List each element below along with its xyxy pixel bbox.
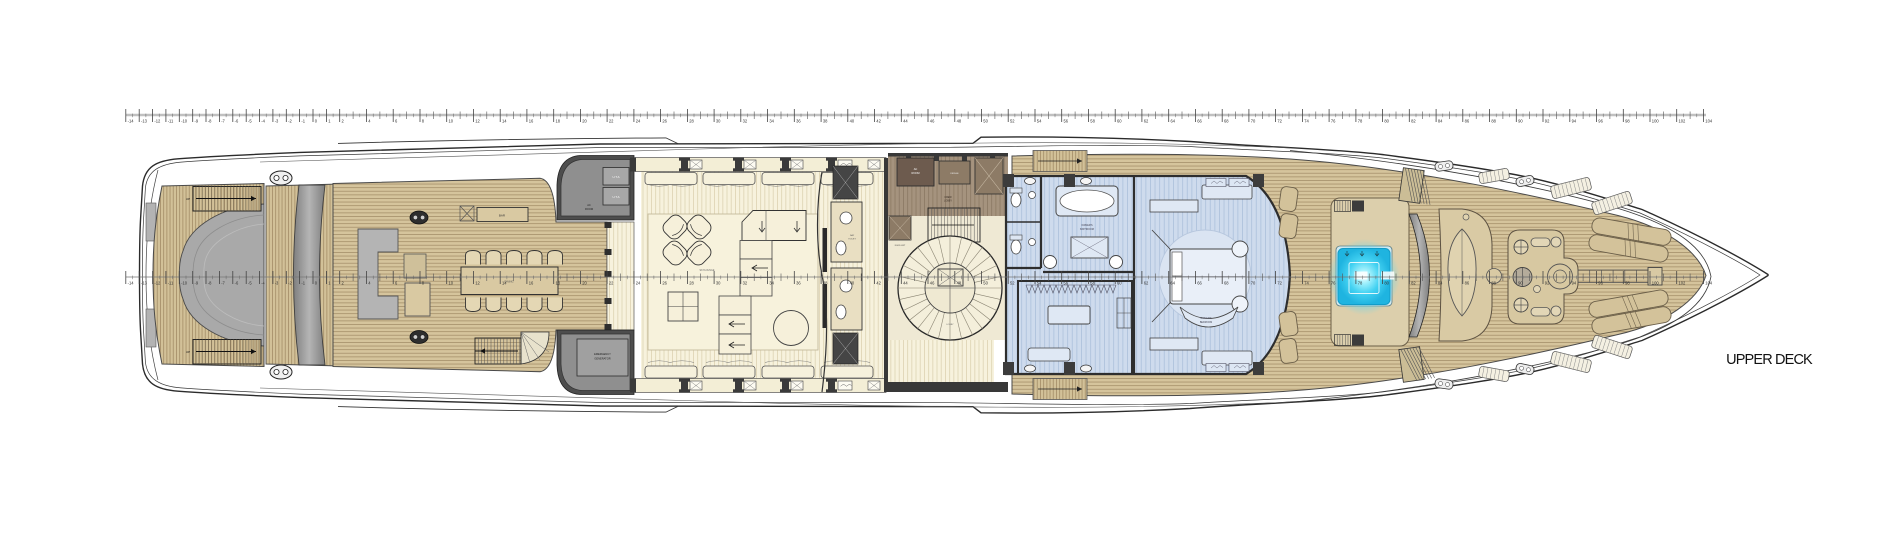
svg-text:68: 68 bbox=[1224, 280, 1229, 285]
svg-text:74: 74 bbox=[1304, 280, 1309, 285]
svg-text:SKYLOUNGE: SKYLOUNGE bbox=[700, 269, 715, 272]
svg-text:20: 20 bbox=[582, 118, 587, 123]
svg-text:24: 24 bbox=[636, 280, 641, 285]
svg-text:14: 14 bbox=[502, 280, 507, 285]
svg-text:92: 92 bbox=[1545, 118, 1550, 123]
svg-text:AC: AC bbox=[914, 167, 918, 171]
svg-text:-11: -11 bbox=[168, 280, 174, 285]
svg-text:26: 26 bbox=[662, 118, 667, 123]
svg-text:100: 100 bbox=[1652, 118, 1660, 123]
svg-text:64: 64 bbox=[1171, 280, 1176, 285]
svg-text:34: 34 bbox=[769, 280, 774, 285]
svg-text:48: 48 bbox=[957, 118, 962, 123]
svg-text:EMERGENCY: EMERGENCY bbox=[594, 352, 611, 356]
svg-text:44: 44 bbox=[903, 280, 908, 285]
svg-text:88: 88 bbox=[1491, 280, 1496, 285]
svg-text:FOOD LIFT: FOOD LIFT bbox=[895, 245, 906, 247]
svg-text:82: 82 bbox=[1411, 118, 1416, 123]
svg-text:78: 78 bbox=[1358, 280, 1363, 285]
svg-text:104: 104 bbox=[1705, 118, 1713, 123]
svg-text:90: 90 bbox=[1518, 280, 1523, 285]
svg-text:70: 70 bbox=[1251, 280, 1256, 285]
svg-text:30: 30 bbox=[716, 280, 721, 285]
svg-text:98: 98 bbox=[1625, 118, 1630, 123]
svg-text:10: 10 bbox=[449, 280, 454, 285]
svg-text:LOBBY: LOBBY bbox=[944, 200, 952, 203]
svg-text:36: 36 bbox=[796, 118, 801, 123]
svg-text:52: 52 bbox=[1010, 118, 1015, 123]
svg-text:104: 104 bbox=[1705, 280, 1713, 285]
svg-text:84: 84 bbox=[1438, 118, 1443, 123]
svg-text:58: 58 bbox=[1090, 280, 1095, 285]
svg-text:62: 62 bbox=[1144, 118, 1149, 123]
svg-text:UP: UP bbox=[186, 197, 190, 201]
svg-text:OWNER'S: OWNER'S bbox=[1200, 317, 1212, 320]
svg-text:16: 16 bbox=[529, 118, 534, 123]
svg-text:42: 42 bbox=[876, 280, 881, 285]
svg-text:64: 64 bbox=[1171, 118, 1176, 123]
svg-text:46: 46 bbox=[930, 280, 935, 285]
svg-text:46: 46 bbox=[930, 118, 935, 123]
svg-text:-14: -14 bbox=[128, 118, 135, 123]
svg-text:40: 40 bbox=[850, 118, 855, 123]
svg-text:38: 38 bbox=[823, 280, 828, 285]
svg-text:12: 12 bbox=[475, 118, 480, 123]
svg-text:36: 36 bbox=[796, 280, 801, 285]
svg-text:U.T.A: U.T.A bbox=[612, 195, 619, 199]
svg-text:76: 76 bbox=[1331, 280, 1336, 285]
svg-text:92: 92 bbox=[1545, 280, 1550, 285]
svg-text:48: 48 bbox=[957, 280, 962, 285]
svg-text:-14: -14 bbox=[128, 280, 135, 285]
svg-text:78: 78 bbox=[1358, 118, 1363, 123]
svg-text:-10: -10 bbox=[181, 280, 188, 285]
svg-text:76: 76 bbox=[1331, 118, 1336, 123]
svg-text:DAY: DAY bbox=[850, 234, 855, 237]
svg-text:BAR: BAR bbox=[499, 214, 506, 218]
svg-text:60: 60 bbox=[1117, 118, 1122, 123]
svg-text:18: 18 bbox=[556, 280, 561, 285]
svg-text:68: 68 bbox=[1224, 118, 1229, 123]
svg-text:ROOM: ROOM bbox=[911, 171, 919, 175]
svg-text:OWNER'S: OWNER'S bbox=[1081, 224, 1093, 227]
svg-text:56: 56 bbox=[1064, 280, 1069, 285]
svg-text:30: 30 bbox=[716, 118, 721, 123]
svg-text:TOILET: TOILET bbox=[848, 239, 856, 241]
svg-text:94: 94 bbox=[1572, 118, 1577, 123]
svg-text:96: 96 bbox=[1598, 118, 1603, 123]
svg-text:98: 98 bbox=[1625, 280, 1630, 285]
svg-text:84: 84 bbox=[1438, 280, 1443, 285]
svg-text:58: 58 bbox=[1090, 118, 1095, 123]
svg-text:-12: -12 bbox=[154, 118, 161, 123]
svg-text:88: 88 bbox=[1491, 118, 1496, 123]
svg-text:16: 16 bbox=[529, 280, 534, 285]
svg-text:100: 100 bbox=[1652, 280, 1660, 285]
svg-text:60: 60 bbox=[1117, 280, 1122, 285]
svg-text:80: 80 bbox=[1384, 118, 1389, 123]
svg-text:52: 52 bbox=[1010, 280, 1015, 285]
svg-text:50: 50 bbox=[983, 280, 988, 285]
svg-text:26: 26 bbox=[662, 280, 667, 285]
svg-text:38: 38 bbox=[823, 118, 828, 123]
svg-text:BEDROOM: BEDROOM bbox=[1200, 321, 1212, 324]
svg-text:40: 40 bbox=[850, 280, 855, 285]
svg-text:20: 20 bbox=[582, 280, 587, 285]
svg-text:72: 72 bbox=[1277, 118, 1282, 123]
svg-text:-11: -11 bbox=[168, 118, 174, 123]
svg-text:66: 66 bbox=[1197, 118, 1202, 123]
svg-text:U.T.A: U.T.A bbox=[612, 175, 619, 179]
svg-text:32: 32 bbox=[743, 118, 748, 123]
svg-text:70: 70 bbox=[1251, 118, 1256, 123]
svg-text:UPPER DECK: UPPER DECK bbox=[1726, 352, 1813, 368]
svg-text:102: 102 bbox=[1679, 118, 1687, 123]
svg-text:28: 28 bbox=[689, 118, 694, 123]
svg-text:96: 96 bbox=[1598, 280, 1603, 285]
svg-text:BATHROOM: BATHROOM bbox=[1080, 228, 1094, 231]
svg-text:28: 28 bbox=[689, 280, 694, 285]
svg-text:90: 90 bbox=[1518, 118, 1523, 123]
svg-text:-12: -12 bbox=[154, 280, 161, 285]
svg-text:-13: -13 bbox=[141, 280, 148, 285]
svg-text:ROOM: ROOM bbox=[585, 207, 593, 211]
svg-text:86: 86 bbox=[1465, 280, 1470, 285]
svg-text:UP: UP bbox=[186, 350, 190, 354]
svg-text:80: 80 bbox=[1384, 280, 1389, 285]
svg-text:24: 24 bbox=[636, 118, 641, 123]
svg-text:94: 94 bbox=[1572, 280, 1577, 285]
svg-text:34: 34 bbox=[769, 118, 774, 123]
svg-text:50: 50 bbox=[983, 118, 988, 123]
svg-text:82: 82 bbox=[1411, 280, 1416, 285]
svg-text:14: 14 bbox=[502, 118, 507, 123]
svg-text:GENERATOR: GENERATOR bbox=[594, 357, 610, 361]
svg-text:32: 32 bbox=[743, 280, 748, 285]
svg-text:AC: AC bbox=[587, 203, 591, 207]
svg-text:LOBBY: LOBBY bbox=[946, 324, 954, 326]
svg-text:66: 66 bbox=[1197, 280, 1202, 285]
svg-text:FRIDGE: FRIDGE bbox=[950, 173, 959, 175]
svg-text:10: 10 bbox=[449, 118, 454, 123]
svg-text:56: 56 bbox=[1064, 118, 1069, 123]
svg-text:42: 42 bbox=[876, 118, 881, 123]
svg-text:22: 22 bbox=[609, 280, 614, 285]
svg-text:54: 54 bbox=[1037, 280, 1042, 285]
svg-text:72: 72 bbox=[1277, 280, 1282, 285]
svg-text:44: 44 bbox=[903, 118, 908, 123]
svg-text:-10: -10 bbox=[181, 118, 188, 123]
svg-text:62: 62 bbox=[1144, 280, 1149, 285]
svg-text:18: 18 bbox=[556, 118, 561, 123]
svg-text:-13: -13 bbox=[141, 118, 148, 123]
svg-text:86: 86 bbox=[1465, 118, 1470, 123]
svg-text:12: 12 bbox=[475, 280, 480, 285]
svg-text:102: 102 bbox=[1679, 280, 1687, 285]
svg-text:74: 74 bbox=[1304, 118, 1309, 123]
svg-text:54: 54 bbox=[1037, 118, 1042, 123]
svg-text:22: 22 bbox=[609, 118, 614, 123]
